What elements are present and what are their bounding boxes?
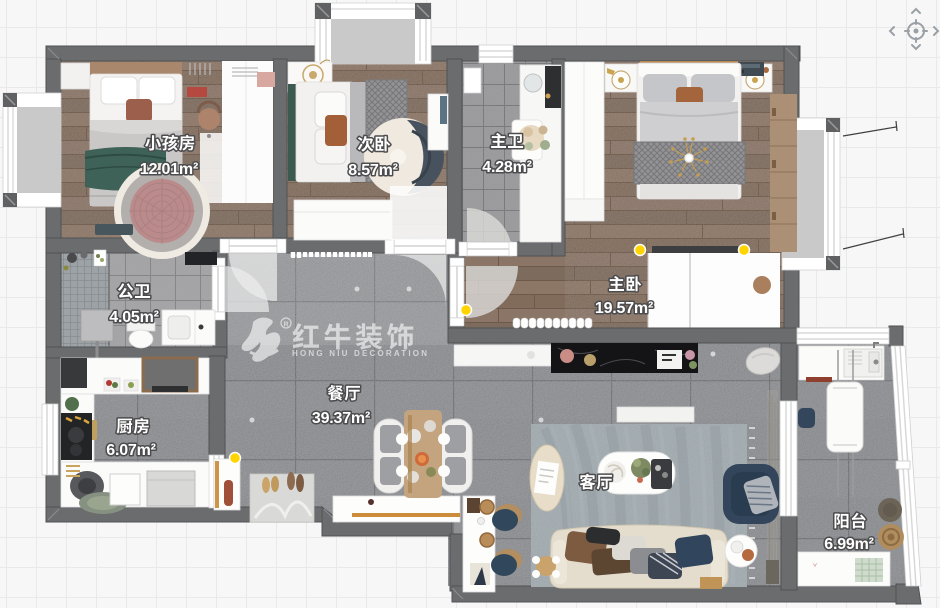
svg-text:4.05m²: 4.05m² (109, 309, 159, 326)
svg-text:6.99m²: 6.99m² (824, 536, 874, 553)
svg-text:8.57m²: 8.57m² (348, 162, 398, 179)
svg-text:4.28m²: 4.28m² (482, 159, 532, 176)
svg-text:6.07m²: 6.07m² (106, 442, 156, 459)
svg-text:12.01m²: 12.01m² (140, 161, 198, 178)
svg-text:39.37m²: 39.37m² (312, 410, 370, 427)
svg-text:HONG NIU DECORATION: HONG NIU DECORATION (292, 349, 429, 358)
svg-text:R: R (283, 322, 288, 329)
svg-text:19.57m²: 19.57m² (595, 300, 653, 317)
